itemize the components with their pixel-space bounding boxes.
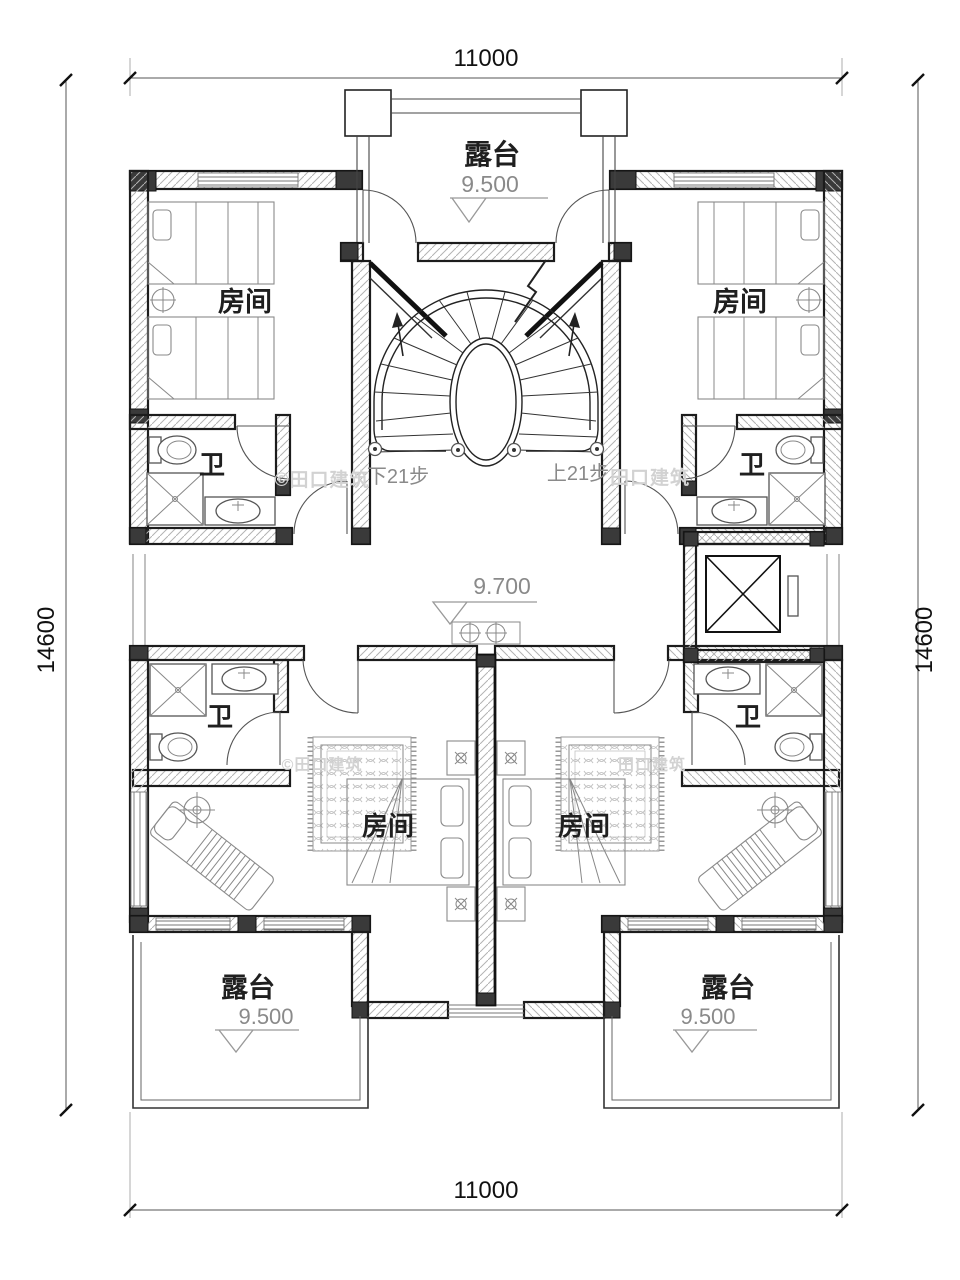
room-lower-right-label: 房间 <box>558 811 610 841</box>
floor-level-value: 9.700 <box>473 573 531 599</box>
level-marker-terrace-left <box>215 1030 299 1052</box>
terrace-left-level: 9.500 <box>238 1004 293 1029</box>
dimension-top: 11000 <box>124 45 848 96</box>
stair-up-note: 上21步 <box>547 462 609 485</box>
watermark: 田口建筑 <box>618 755 686 774</box>
level-marker-top-terrace <box>450 198 548 222</box>
bath-lower-right-label: 卫 <box>735 702 761 732</box>
watermark: ©田口建筑 <box>275 468 370 491</box>
level-marker-terrace-right <box>673 1030 757 1052</box>
elevator-counterweight <box>788 576 798 616</box>
dimension-right: 14600 <box>911 74 938 1116</box>
dim-right-value: 14600 <box>911 607 938 674</box>
floor-plan-svg: 11000 11000 14600 14600 <box>0 0 960 1280</box>
stair-hall-walls <box>341 243 631 544</box>
terrace-right-level: 9.500 <box>680 1004 735 1029</box>
floor-plan-page: 11000 11000 14600 14600 <box>0 0 960 1280</box>
bath-lower-left-label: 卫 <box>207 702 233 732</box>
terrace-left-label: 露台 <box>221 972 275 1003</box>
stair-down-note: 下21步 <box>367 465 429 488</box>
dim-top-value: 11000 <box>454 45 519 72</box>
elevator <box>684 532 824 662</box>
center-wall <box>477 655 495 1005</box>
terrace-right-label: 露台 <box>701 972 755 1003</box>
room-lower-left-label: 房间 <box>362 811 414 841</box>
double-basin-fixture <box>452 622 520 644</box>
bath-upper-left-label: 卫 <box>199 450 225 480</box>
stair-arrow-up-right <box>569 312 580 328</box>
room-upper-left-label: 房间 <box>218 287 272 317</box>
dim-left-value: 14600 <box>33 607 60 674</box>
bath-upper-right-label: 卫 <box>739 450 765 480</box>
left-wing-walls <box>130 171 524 1018</box>
watermark: ©田口建筑 <box>282 755 363 774</box>
dimension-left: 14600 <box>33 74 72 1116</box>
watermark: 田口建筑 <box>610 466 690 489</box>
column <box>345 90 391 136</box>
room-upper-right-label: 房间 <box>713 287 767 317</box>
top-terrace-level: 9.500 <box>461 171 519 197</box>
stair-break-line <box>515 260 546 322</box>
dim-bottom-value: 11000 <box>454 1177 519 1204</box>
curved-staircase <box>369 260 604 466</box>
stair-arrow-up-left <box>392 312 403 328</box>
dimension-bottom: 11000 <box>124 1112 848 1218</box>
level-marker-floor <box>433 602 537 624</box>
column <box>581 90 627 136</box>
top-terrace-label: 露台 <box>464 138 520 170</box>
